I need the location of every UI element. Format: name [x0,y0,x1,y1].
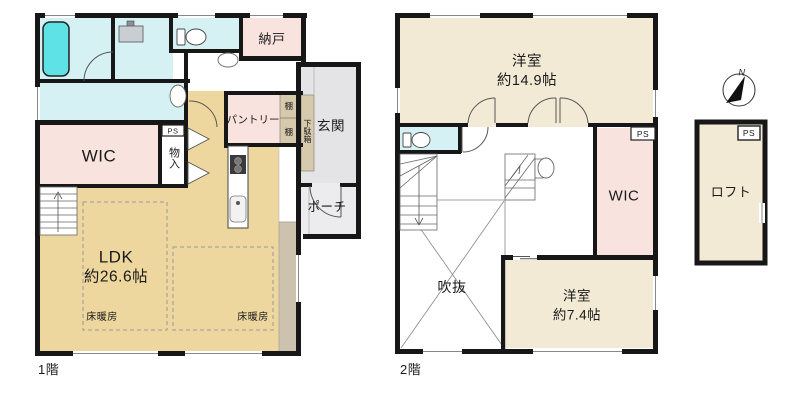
window [533,349,622,354]
toilet-2f [403,133,430,148]
window [250,13,283,18]
door-opening [528,123,588,127]
closet-label: 物入 [168,147,179,169]
floor-plan-drawing [0,0,800,400]
sliding-door [513,255,537,260]
bedroom-small-label: 洋室 [563,289,591,303]
toilet-door-arc [463,127,488,152]
loft-label: ロフト [711,186,752,199]
loft-basin [538,158,554,178]
floor2-name: 2階 [400,363,421,376]
floor-heating2-label: 床暖房 [237,313,269,323]
shelf1-label: 棚 [284,102,293,111]
ps1-label: PS [167,127,178,135]
wic2-label: WIC [609,189,640,204]
void-label: 吹抜 [438,280,467,294]
ps2-label: PS [637,129,649,138]
window [430,13,480,18]
kitchen-sink [230,196,246,222]
ps-loft-label: PS [743,129,755,138]
wic1-label: WIC [82,148,117,165]
vanity-sink [119,26,143,42]
window [296,255,301,302]
ldk-label: LDK [99,249,134,266]
bathtub [43,22,69,76]
ldk-size-label: 約26.6帖 [84,269,148,285]
window [35,87,40,120]
window [185,351,262,356]
powder-room-floor [37,82,188,124]
toilet-1f [177,29,206,45]
front-door-opening [312,183,340,187]
floor-plan-page: 納戸 WIC PS 物入 パントリー 棚 棚 下駄箱 玄関 ポーチ LDK 約2… [0,0,800,400]
entrance-label: 玄関 [317,119,345,133]
window [653,90,658,117]
floor1-plan [35,13,361,356]
porch-label: ポーチ [307,201,346,214]
wash-basin [170,85,186,107]
bedroom-large-floor [400,18,653,123]
window [653,276,658,310]
washroom-floor [113,15,173,81]
north-label: N [739,69,746,78]
shoe-cabinet-label: 下駄箱 [303,119,311,143]
floor-heating1-label: 床暖房 [86,313,118,323]
bedroom-small-floor [505,260,653,348]
shelf2-label: 棚 [284,128,293,137]
bedroom-large-size: 約14.9帖 [497,74,557,89]
deck-strip [279,222,298,352]
compass [723,74,755,106]
bedroom-small-size: 約7.4帖 [553,308,601,322]
stairs-2f [400,154,437,230]
pantry-label: パントリー [226,115,279,126]
loft-stairs [505,154,535,200]
window [73,351,158,356]
window [759,203,765,223]
window [423,349,462,354]
floor1-name: 1階 [38,363,59,376]
stairs-1f [40,187,77,235]
window [395,88,400,113]
bedroom-large-label: 洋室 [512,55,542,70]
door-opening [468,123,496,127]
hand-wash-basin [218,53,238,67]
window [533,13,627,18]
window [45,13,75,18]
window [178,13,215,18]
kitchen-counter [228,146,248,228]
storeroom-label: 納戸 [258,33,285,46]
